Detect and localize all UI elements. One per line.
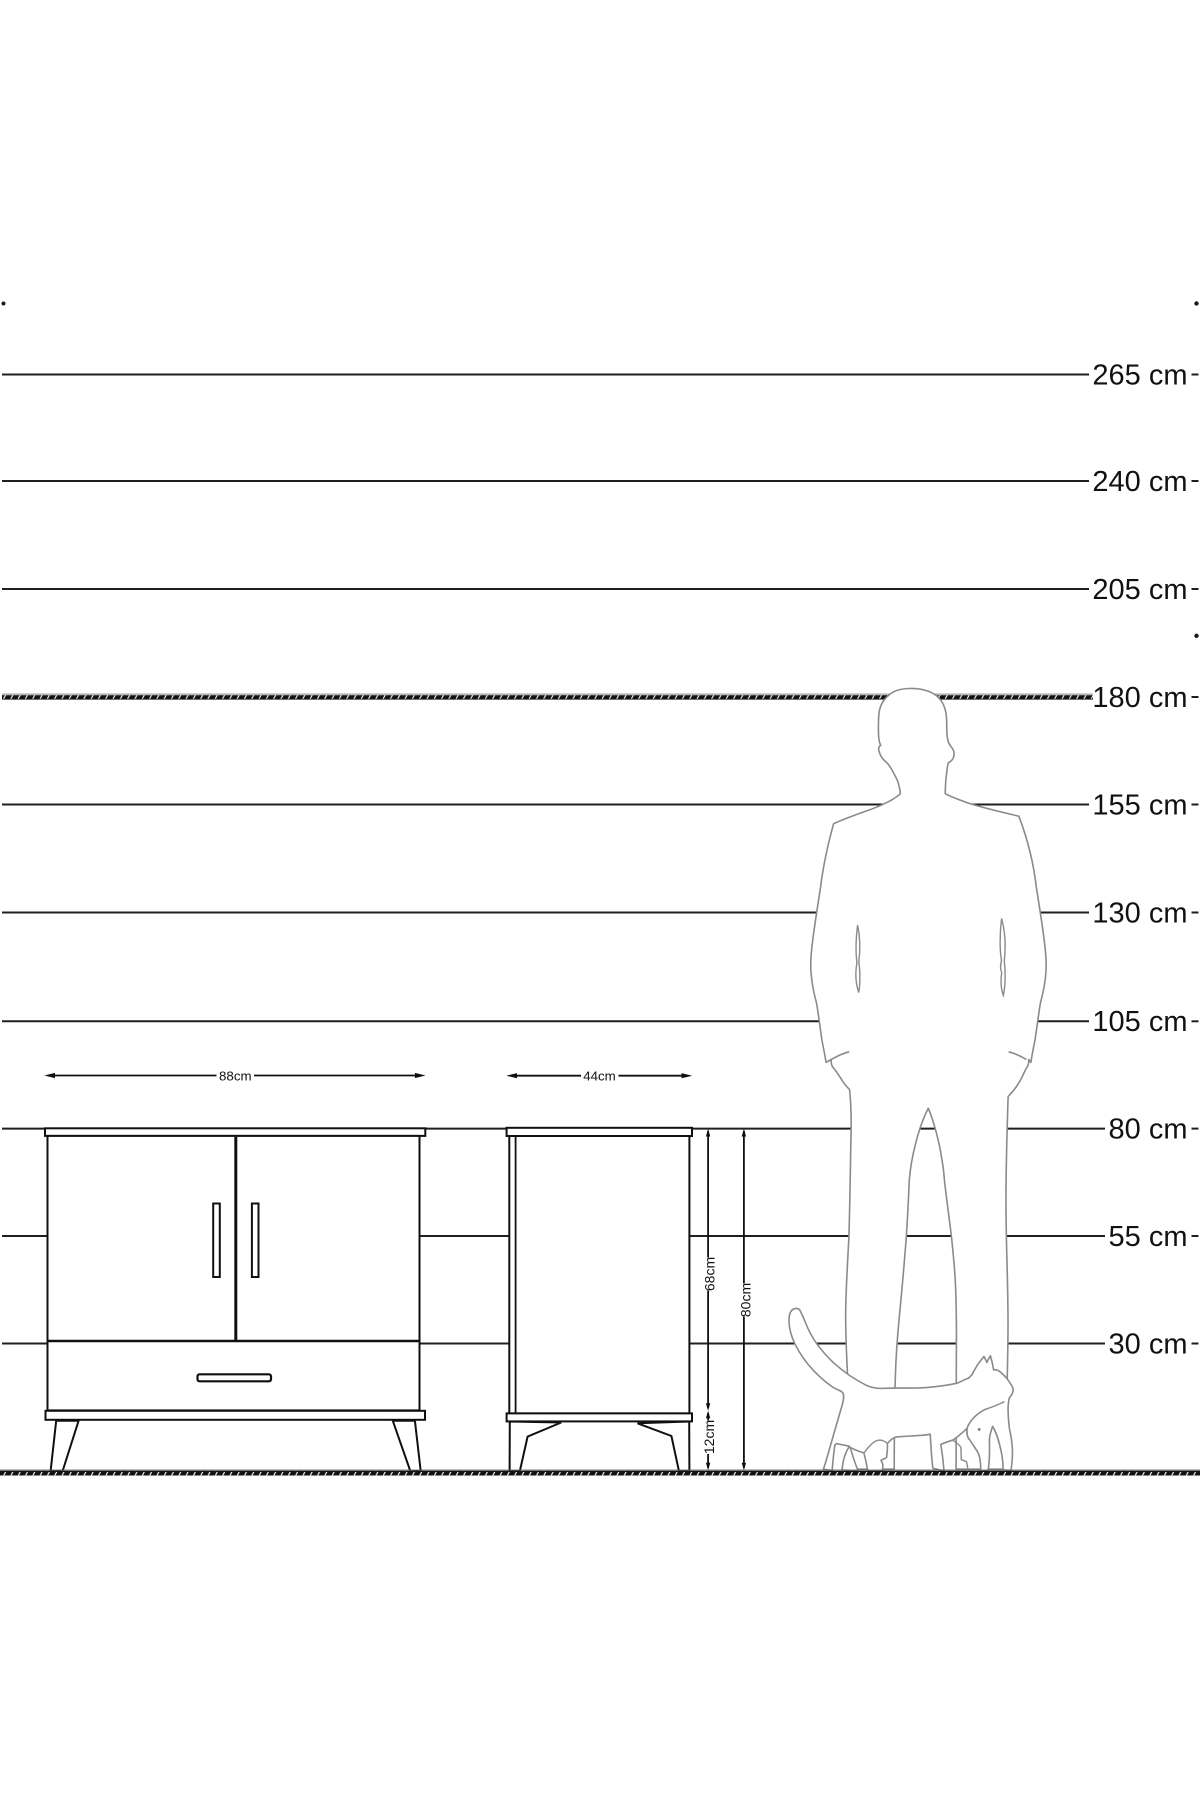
svg-text:130 cm: 130 cm	[1092, 897, 1187, 929]
svg-text:88cm: 88cm	[219, 1068, 252, 1083]
svg-text:240 cm: 240 cm	[1092, 466, 1187, 498]
svg-text:180 cm: 180 cm	[1092, 682, 1187, 714]
svg-text:105 cm: 105 cm	[1092, 1006, 1187, 1038]
svg-text:44cm: 44cm	[583, 1069, 616, 1084]
svg-text:205 cm: 205 cm	[1092, 574, 1187, 606]
svg-text:155 cm: 155 cm	[1092, 789, 1187, 821]
svg-text:30 cm: 30 cm	[1109, 1328, 1188, 1360]
svg-text:68cm: 68cm	[701, 1257, 717, 1291]
svg-text:80cm: 80cm	[737, 1283, 753, 1317]
svg-text:12cm: 12cm	[701, 1420, 717, 1454]
svg-text:80 cm: 80 cm	[1109, 1113, 1188, 1145]
svg-text:265 cm: 265 cm	[1092, 359, 1187, 391]
svg-text:55 cm: 55 cm	[1109, 1221, 1188, 1253]
